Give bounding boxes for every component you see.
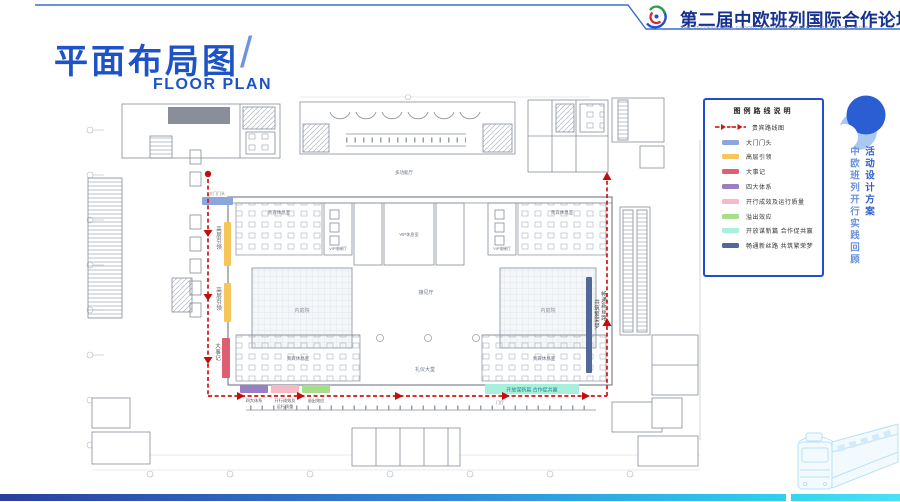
- zone-performance-label: 开行成效及: [275, 397, 297, 404]
- legend-label: 大门门头: [746, 138, 772, 147]
- color-swatch-icon: [722, 199, 739, 204]
- legend-label: 开行成效及运行质量: [746, 197, 805, 206]
- legend-item: 开行成效及运行质量: [705, 194, 822, 209]
- zone-leadership-vlabel: 高层引领: [215, 226, 221, 250]
- zone-leadership-bar: [224, 222, 231, 266]
- color-swatch-icon: [722, 154, 739, 159]
- legend-item: 高层引领: [705, 150, 822, 165]
- side-caption-review: 中欧班列开行实践回顾: [846, 146, 860, 266]
- room-label-multi-hall: 多功能厅: [395, 169, 413, 176]
- legend-item: 畅通新丝路 共筑繁荣梦: [705, 238, 822, 253]
- train-icon: [798, 424, 898, 489]
- color-swatch-icon: [722, 169, 739, 174]
- zone-leadership-vlabel: 高层引领: [215, 287, 221, 311]
- room-label-vip-lounge: 贵宾休息室: [533, 355, 556, 362]
- zone-spillover-label: 溢出效应: [308, 397, 325, 404]
- legend-label: 高层引领: [746, 152, 772, 161]
- page-title-slash: /: [240, 28, 252, 78]
- room-label-vip-elevator: VIP电梯厅: [493, 246, 511, 251]
- legend-label: 四大体系: [746, 182, 772, 191]
- room-label-courtyard: 内庭院: [540, 307, 555, 314]
- zone-blue-slogan-vlabel: 畅通新丝路: [600, 291, 606, 321]
- room-label-vip-lounge: 贵宾休息室: [287, 355, 310, 362]
- zone-blue-slogan-bar: [586, 277, 592, 373]
- color-swatch-icon: [722, 214, 739, 219]
- legend-panel: 图例路线说明 贵宾路线图 大门门头 高层引领 大事记 四大体系 开行成效及运行质…: [703, 98, 824, 277]
- zone-spillover-bar: [302, 385, 330, 393]
- room-label-vip-room: VIP休息室: [399, 231, 418, 238]
- room-label-courtyard: 内庭院: [294, 307, 309, 314]
- forum-logo-icon: [646, 6, 669, 29]
- legend-item-route: 贵宾路线图: [705, 120, 822, 135]
- legend-title: 图例路线说明: [705, 106, 822, 116]
- zone-gate-label: 大门门头: [209, 190, 225, 196]
- room-label-reception-hall: 接见厅: [418, 289, 433, 296]
- legend-label: 溢出效应: [746, 212, 772, 221]
- legend-label: 畅通新丝路 共筑繁荣梦: [746, 241, 813, 250]
- page-title-en: FLOOR PLAN: [100, 76, 272, 94]
- legend-item: 溢出效应: [705, 209, 822, 224]
- room-label-vip-lounge: 贵宾休息室: [551, 209, 574, 216]
- room-label-foyer: 门厅: [496, 399, 504, 405]
- legend-label: 大事记: [746, 167, 766, 176]
- color-swatch-icon: [722, 228, 739, 233]
- color-swatch-icon: [722, 243, 739, 248]
- zone-blue-slogan-vlabel: 共筑繁荣梦: [593, 299, 599, 329]
- room-label-vip-elevator: VIP电梯厅: [329, 246, 347, 251]
- zone-leadership-bar: [224, 283, 231, 322]
- legend-item: 四大体系: [705, 179, 822, 194]
- color-swatch-icon: [722, 140, 739, 145]
- zone-performance-label2: 运行质量: [277, 403, 294, 410]
- legend-label: 开放谋新篇 合作促共赢: [746, 226, 813, 235]
- zone-milestones-vlabel: 大事记: [214, 343, 220, 361]
- color-swatch-icon: [722, 184, 739, 189]
- room-label-vip-lounge: 贵宾休息室: [268, 209, 291, 216]
- legend-label: 贵宾路线图: [752, 123, 785, 132]
- zone-four-systems-label: 四大体系: [246, 397, 263, 404]
- plan-buildings: [88, 98, 700, 466]
- side-caption-plan: 活动设计方案: [861, 146, 875, 218]
- zone-four-systems-bar: [240, 385, 268, 393]
- bottom-gradient-bar-right: [791, 494, 900, 501]
- room-label-ceremony-hall: 礼仪大堂: [415, 366, 435, 373]
- legend-item: 大事记: [705, 164, 822, 179]
- header-subtitle: THE SECOND CHINA-EUROPE RAILWAY EXPRESS …: [681, 26, 870, 32]
- route-dash-arrow-icon: [715, 123, 746, 131]
- zone-performance-bar: [271, 385, 299, 393]
- zone-cyan-slogan-label: 开放谋新篇 合作促共赢: [506, 387, 557, 394]
- bottom-gradient-bar: [0, 494, 786, 501]
- legend-item: 开放谋新篇 合作促共赢: [705, 224, 822, 239]
- zone-gate-bar: [202, 197, 233, 205]
- zone-milestones-bar: [222, 338, 230, 378]
- circle-decoration: [832, 96, 886, 151]
- legend-item: 大门门头: [705, 135, 822, 150]
